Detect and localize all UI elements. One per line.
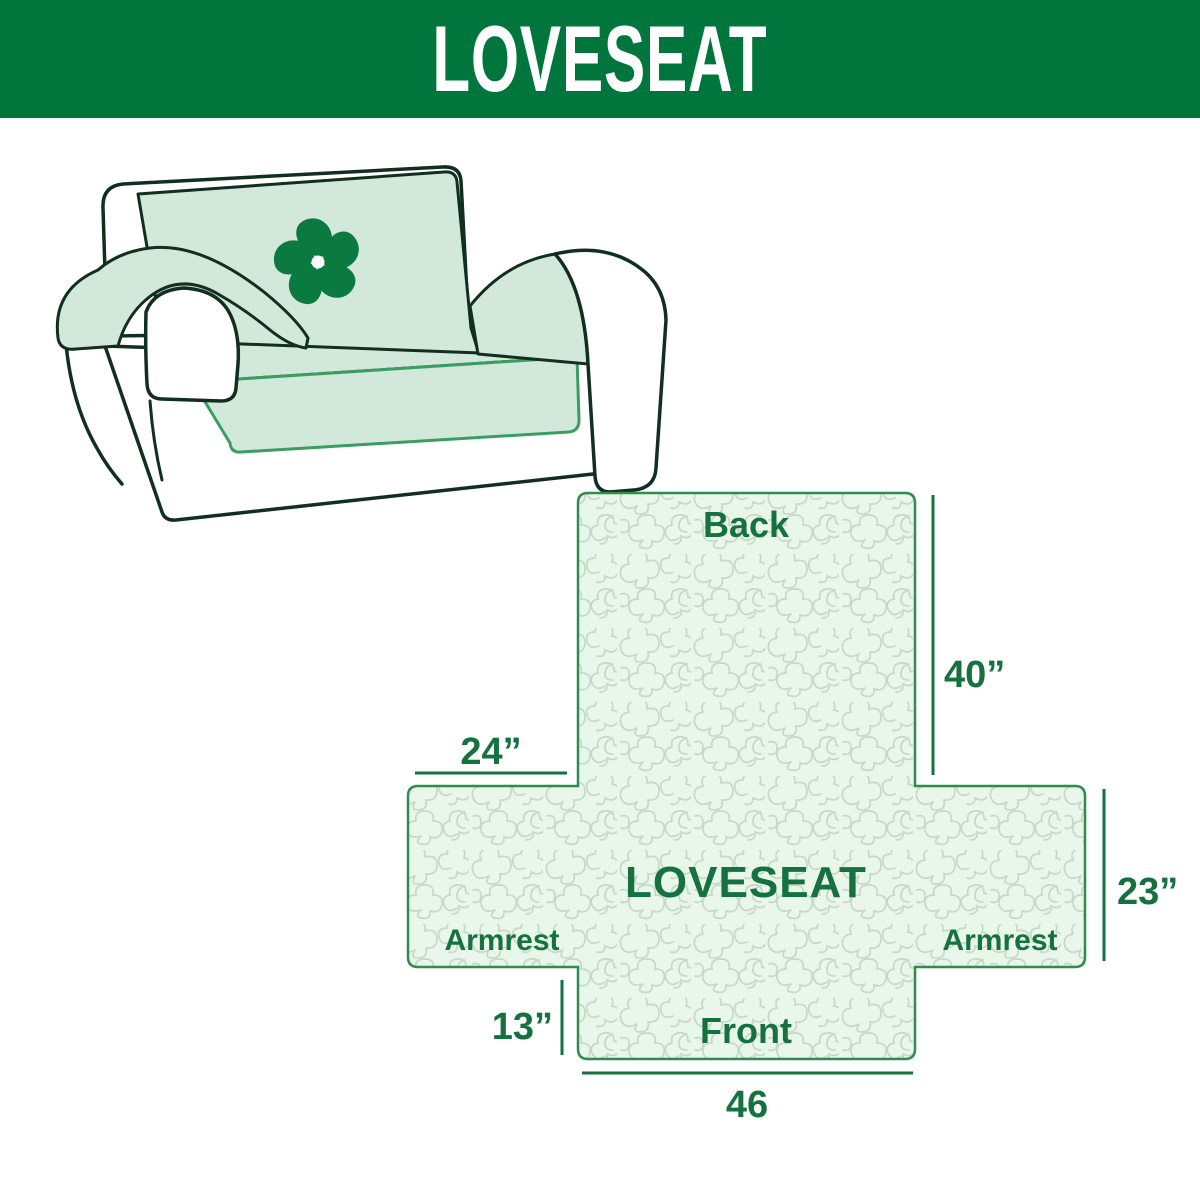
- label-armrest-right: Armrest: [942, 924, 1057, 957]
- dim-back-height: 40”: [944, 654, 1005, 696]
- label-armrest-left: Armrest: [444, 924, 559, 957]
- label-front: Front: [700, 1010, 792, 1051]
- page: { "header": { "title": "LOVESEAT", "back…: [0, 0, 1200, 1200]
- dim-front-skirt-height: 13”: [492, 1006, 553, 1048]
- cross-diagram: Back LOVESEAT Armrest Armrest Front 40” …: [395, 480, 1200, 1130]
- label-back: Back: [703, 504, 790, 545]
- page-title: LOVESEAT: [432, 12, 767, 106]
- dim-front-width: 46: [726, 1084, 768, 1126]
- dim-armrest-side-height: 23”: [1117, 871, 1178, 913]
- sofa-left-arm-roll: [146, 288, 239, 401]
- dim-armrest-top-width: 24”: [460, 731, 521, 773]
- cross-shape: [408, 493, 1085, 1059]
- header-banner: LOVESEAT: [0, 0, 1200, 118]
- cover-dimension-diagram: Back LOVESEAT Armrest Armrest Front 40” …: [395, 480, 1200, 1130]
- label-center: LOVESEAT: [625, 858, 867, 907]
